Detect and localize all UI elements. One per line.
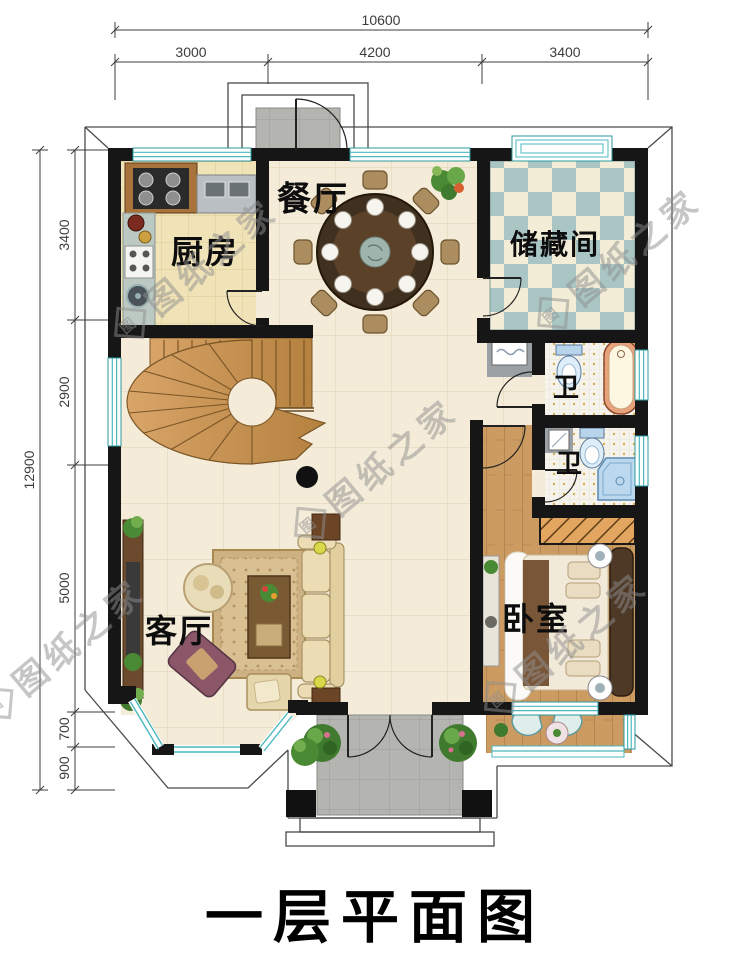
room-label-bedroom: 卧室 [502, 594, 570, 640]
room-label-bath-lower: 卫 [556, 444, 584, 481]
dim-left-seg-3: 700 [56, 717, 72, 740]
floor-plan-canvas: 10600 3000 4200 3400 12900 3400 2900 500… [0, 0, 750, 961]
dim-top-seg-2: 3400 [549, 44, 580, 60]
room-label-kitchen: 厨房 [171, 227, 239, 273]
structural-column [296, 466, 318, 488]
room-label-storage: 储藏间 [510, 223, 600, 263]
dim-left-seg-4: 900 [56, 756, 72, 779]
floor-plan-drawing [0, 0, 750, 961]
dim-left-seg-2: 5000 [56, 572, 72, 603]
dim-top-total: 10600 [362, 12, 401, 28]
dim-left-seg-1: 2900 [56, 376, 72, 407]
dim-top-seg-0: 3000 [175, 44, 206, 60]
storage-bay-window [512, 136, 612, 161]
room-label-living: 客厅 [145, 606, 213, 652]
dim-left-seg-0: 3400 [56, 219, 72, 250]
plan-title: 一层平面图 [205, 870, 545, 954]
dim-top-seg-1: 4200 [359, 44, 390, 60]
dim-left-total: 12900 [21, 451, 37, 490]
room-label-bath-upper: 卫 [553, 368, 581, 405]
room-label-dining: 餐厅 [277, 172, 349, 221]
